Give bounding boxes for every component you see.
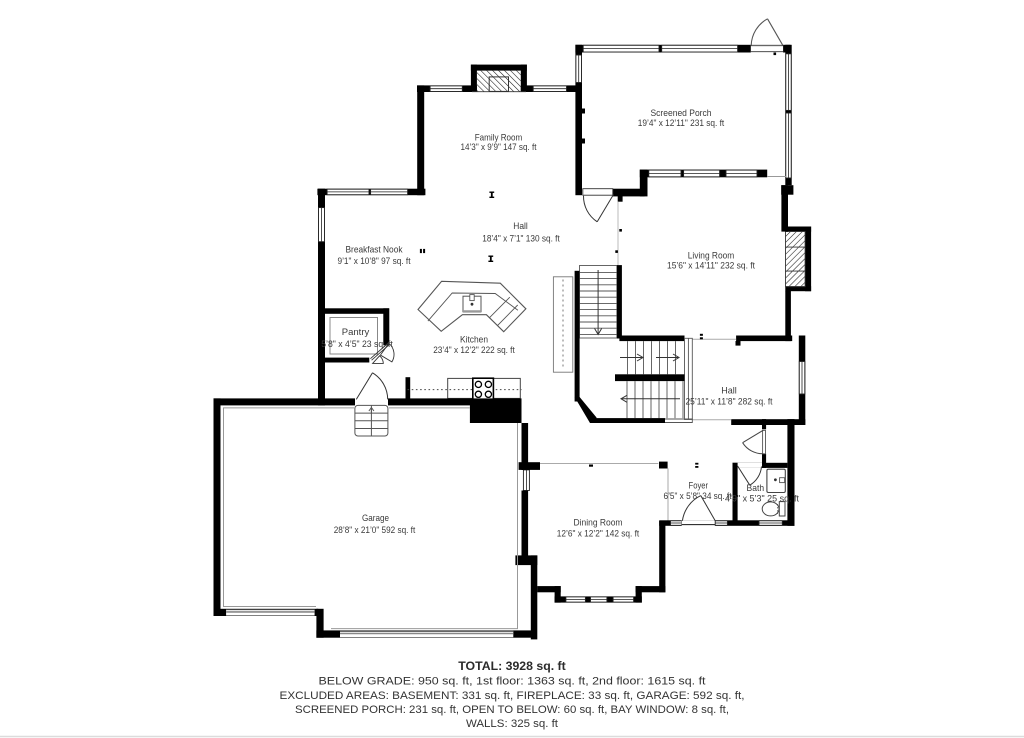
svg-text:28’8" x 21’0" 592 sq. ft: 28’8" x 21’0" 592 sq. ft <box>334 525 416 535</box>
svg-text:Breakfast Nook: Breakfast Nook <box>346 245 403 255</box>
svg-text:Family Room: Family Room <box>475 133 523 143</box>
svg-text:25’11" x 11’8" 282 sq. ft: 25’11" x 11’8" 282 sq. ft <box>686 397 773 407</box>
svg-text:15’6" x 14’11" 232 sq. ft: 15’6" x 14’11" 232 sq. ft <box>667 261 755 271</box>
svg-text:6’5" x 5’8" 34 sq. ft: 6’5" x 5’8" 34 sq. ft <box>664 491 732 501</box>
svg-text:Hall: Hall <box>721 386 737 396</box>
svg-text:Dining Room: Dining Room <box>574 518 623 528</box>
svg-text:Garage: Garage <box>362 513 389 523</box>
svg-text:TOTAL: 3928 sq. ft: TOTAL: 3928 sq. ft <box>458 660 566 673</box>
svg-text:18’4" x 7’1" 130 sq. ft: 18’4" x 7’1" 130 sq. ft <box>482 234 560 244</box>
svg-text:12’6" x 12’2" 142 sq. ft: 12’6" x 12’2" 142 sq. ft <box>557 529 640 539</box>
svg-text:Kitchen: Kitchen <box>460 335 488 345</box>
svg-text:9’1" x 10’8" 97 sq. ft: 9’1" x 10’8" 97 sq. ft <box>338 256 411 266</box>
svg-text:Bath: Bath <box>747 483 765 493</box>
svg-text:23’4" x 12’2" 222 sq. ft: 23’4" x 12’2" 222 sq. ft <box>433 345 515 355</box>
svg-text:WALLS: 325 sq. ft: WALLS: 325 sq. ft <box>466 718 559 730</box>
svg-text:Hall: Hall <box>513 221 528 231</box>
svg-text:EXCLUDED AREAS: BASEMENT: 331: EXCLUDED AREAS: BASEMENT: 331 sq. ft, FI… <box>280 690 745 702</box>
svg-text:4’9" x 5’3" 25 sq. ft: 4’9" x 5’3" 25 sq. ft <box>725 494 799 504</box>
svg-text:SCREENED PORCH: 231 sq. ft, OP: SCREENED PORCH: 231 sq. ft, OPEN TO BELO… <box>295 704 729 716</box>
svg-text:Living Room: Living Room <box>688 251 735 261</box>
svg-text:14’3" x 9’9" 147 sq. ft: 14’3" x 9’9" 147 sq. ft <box>461 142 537 152</box>
svg-text:5’8" x 4’5" 23 sq. ft: 5’8" x 4’5" 23 sq. ft <box>321 339 393 349</box>
svg-text:Screened Porch: Screened Porch <box>651 108 712 118</box>
svg-text:Foyer: Foyer <box>689 481 709 491</box>
svg-text:19’4" x 12’11" 231 sq. ft: 19’4" x 12’11" 231 sq. ft <box>638 118 725 128</box>
svg-text:BELOW GRADE: 950 sq. ft, 1st f: BELOW GRADE: 950 sq. ft, 1st floor: 1363… <box>319 676 707 688</box>
svg-text:Pantry: Pantry <box>342 327 370 337</box>
